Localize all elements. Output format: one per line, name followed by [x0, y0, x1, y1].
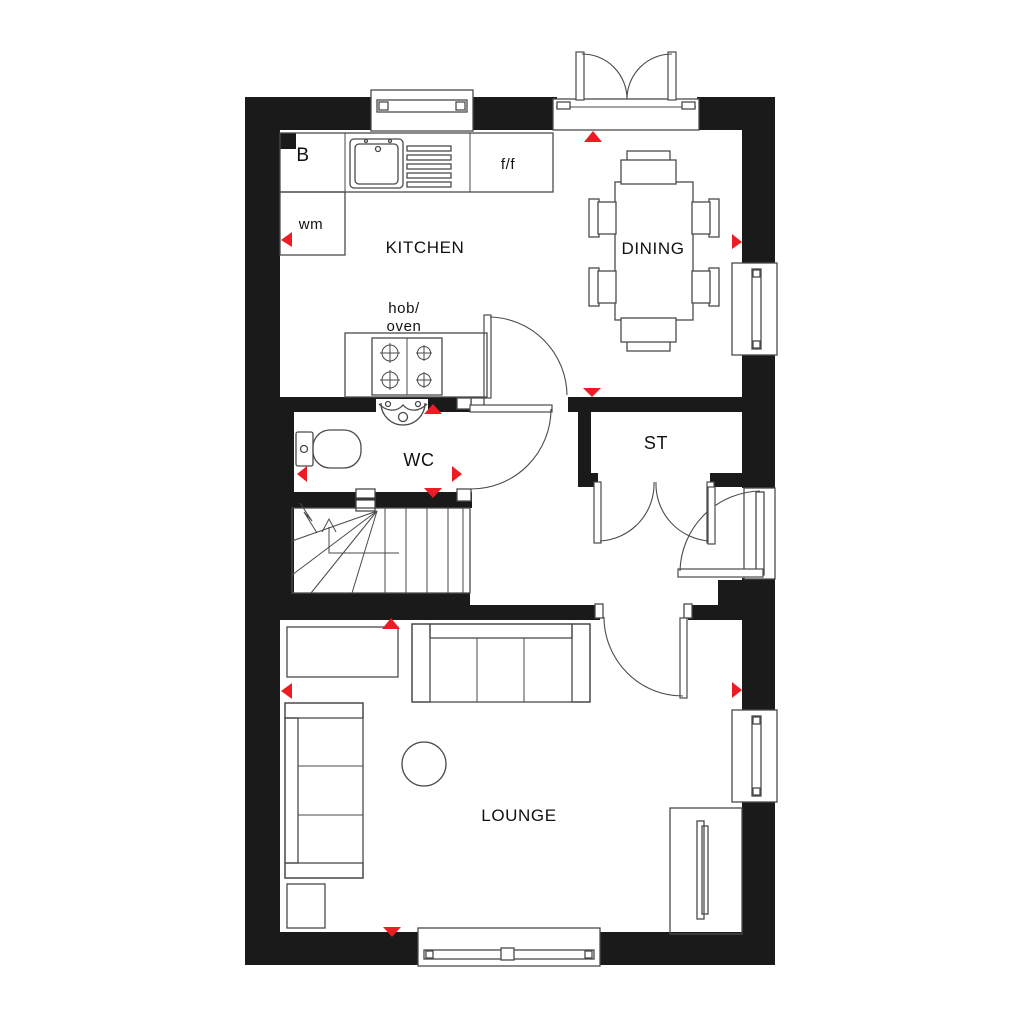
stair-direction-arrow: [322, 519, 399, 553]
floor-plan-drawing: KITCHEN DINING WC ST LOUNGE B wm f/f hob…: [0, 0, 1024, 1024]
drainer-bar: [407, 182, 451, 187]
wc-door-jamb-top: [457, 398, 471, 409]
wall-bottom-a: [245, 932, 419, 965]
kitchen-sink: [350, 139, 451, 188]
lounge-furniture: [285, 624, 742, 934]
marker-wc-left: [297, 466, 307, 482]
entrance-side-panel: [708, 487, 715, 544]
room-label-dining: DINING: [621, 239, 684, 258]
french-door-left-leaf: [576, 52, 584, 100]
lounge-side-window: [732, 710, 777, 802]
lounge-door-jamb-left: [595, 604, 603, 618]
tv-screen: [697, 821, 704, 919]
marker-dining-bottom: [583, 388, 601, 397]
marker-dining-top: [584, 131, 602, 142]
dining-chair-left-2: [589, 268, 616, 306]
dining-window: [732, 263, 777, 355]
lounge-door-swing: [604, 617, 683, 696]
lounge-door-leaf: [680, 618, 687, 698]
front-door-leaf: [678, 569, 763, 577]
fridge-freezer-label: f/f: [501, 156, 516, 173]
hob-oven-unit: [345, 333, 487, 397]
dining-chair-bottom: [621, 318, 676, 351]
hob-oven-label-line2: oven: [387, 318, 422, 335]
marker-kitchen-left: [281, 232, 292, 247]
marker-dining-right: [732, 234, 742, 249]
wall-right-2: [742, 353, 775, 488]
drainer-bar: [407, 164, 451, 169]
french-door-right-leaf: [668, 52, 676, 100]
marker-lounge-left: [281, 683, 292, 699]
washing-machine-label: wm: [298, 216, 324, 233]
french-door-left-swing: [582, 54, 627, 99]
wall-right-1: [742, 97, 775, 265]
wall-entrance-pier: [718, 580, 742, 620]
store-double-doors: [594, 482, 714, 543]
side-table: [287, 884, 325, 928]
room-label-kitchen: KITCHEN: [386, 238, 465, 257]
toilet: [296, 430, 361, 468]
wc-door-swing: [471, 409, 551, 489]
wall-hall-lounge-a: [245, 593, 470, 620]
doors: [457, 52, 763, 698]
store-door-left-swing: [600, 482, 654, 541]
wall-top-a: [280, 97, 373, 130]
dining-chair-right-2: [692, 268, 719, 306]
french-doors: [576, 52, 676, 100]
hob-oven-label-line1: hob/: [388, 300, 420, 317]
french-door-right-swing: [627, 54, 672, 99]
store-door-right-swing: [656, 482, 710, 541]
wall-store-corner-right: [710, 473, 742, 487]
front-door-threshold: [744, 488, 775, 579]
sideboard: [287, 627, 398, 677]
drainer-bar: [407, 155, 451, 160]
marker-lounge-right: [732, 682, 742, 698]
stair-newel-block-top: [356, 489, 375, 498]
floor-plan: KITCHEN DINING WC ST LOUNGE B wm f/f hob…: [0, 0, 1024, 1024]
french-door-threshold: [553, 99, 699, 130]
room-label-wc: WC: [403, 450, 434, 470]
dining-chair-left-1: [589, 199, 616, 237]
toilet-cistern: [296, 432, 313, 466]
coffee-table: [402, 742, 446, 786]
marker-wc-right: [452, 466, 462, 482]
dining-chair-right-1: [692, 199, 719, 237]
lounge-bottom-window: [418, 928, 600, 966]
wall-top-b: [473, 97, 557, 130]
basin: [376, 399, 428, 425]
tv-unit: [670, 808, 742, 934]
boiler-label: B: [296, 145, 309, 166]
kitchen-door: [471, 315, 567, 410]
stair-treads: [385, 508, 448, 593]
stair-newel-block-bottom: [356, 500, 375, 511]
kitchen-window: [371, 90, 473, 131]
wc-door: [457, 398, 552, 501]
dining-chair-top: [621, 151, 676, 184]
wc-door-leaf: [470, 405, 552, 412]
drainer-bar: [407, 173, 451, 178]
sofa-small: [285, 703, 363, 878]
stair-winders: [292, 511, 377, 593]
wc-door-jamb-bottom: [457, 489, 471, 501]
wall-right-3: [742, 578, 775, 712]
sofa-large: [412, 624, 590, 702]
lounge-door-jamb-right: [684, 604, 692, 618]
store-door-left-leaf: [594, 482, 601, 543]
wall-hall-lounge-c: [688, 605, 720, 620]
wall-wc-stairs: [280, 492, 472, 508]
wall-dining-hall: [568, 397, 742, 412]
lounge-door: [595, 604, 692, 698]
room-label-lounge: LOUNGE: [481, 806, 556, 825]
boiler-block: [280, 133, 296, 149]
kitchen-door-swing: [490, 317, 567, 395]
room-label-store: ST: [644, 433, 668, 453]
toilet-bowl: [313, 430, 361, 468]
wall-store-left: [578, 410, 591, 476]
wall-hall-lounge-b: [470, 605, 600, 620]
drainer-bar: [407, 146, 451, 151]
wall-bottom-b: [599, 932, 775, 965]
wall-left: [245, 97, 280, 965]
stair-outline: [292, 508, 470, 593]
